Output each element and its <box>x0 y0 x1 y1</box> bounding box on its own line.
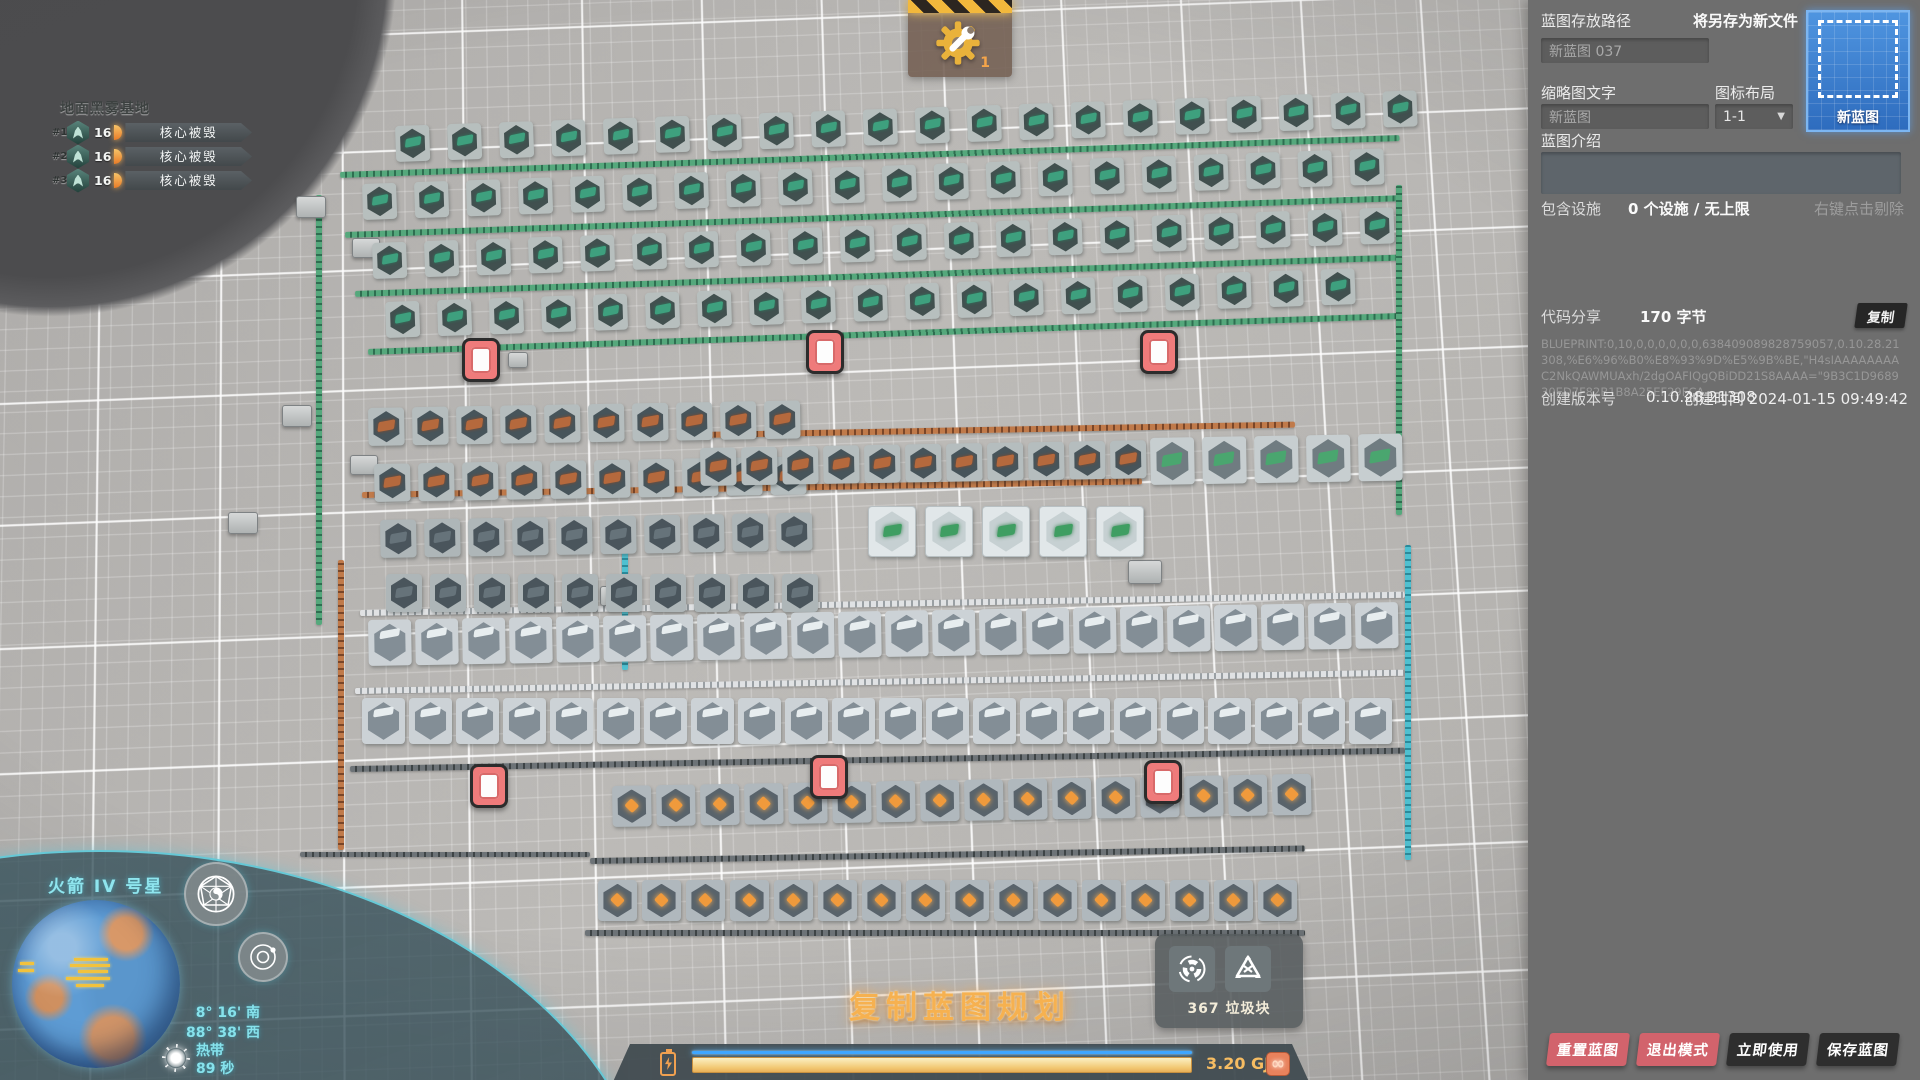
machine-darkm <box>688 514 725 553</box>
machine-smelter <box>1073 607 1117 654</box>
machine-copper <box>823 445 860 484</box>
machine-green <box>414 181 449 218</box>
machine-smelter <box>368 619 412 666</box>
base-status: 核心被毁 <box>125 171 252 190</box>
machine-green <box>1268 270 1303 307</box>
machine-green <box>986 161 1021 198</box>
power-bar-panel: 3.20 GJ ∞ <box>612 1044 1310 1080</box>
orbit-icon <box>246 940 280 974</box>
machine-copper <box>500 405 537 444</box>
machine-lab <box>925 506 973 557</box>
dyson-sphere-icon <box>194 872 238 916</box>
machine-green <box>934 163 969 200</box>
conveyor-belt <box>1405 545 1411 860</box>
machine-smelter <box>744 613 788 660</box>
machine-green <box>645 292 680 329</box>
machine-green <box>840 225 875 262</box>
local-time: 89 秒 <box>196 1060 234 1078</box>
machine-smelter <box>1167 605 1211 652</box>
machine-copper <box>638 459 675 498</box>
machine-copper <box>700 447 737 486</box>
machine-copper <box>741 447 778 486</box>
power-charge-line <box>692 1051 1192 1054</box>
machine-smelter <box>1208 698 1251 744</box>
machine-green <box>1226 96 1261 133</box>
machine-darkm <box>650 574 686 612</box>
machine-darkm <box>424 519 461 558</box>
machine-copper <box>905 444 942 483</box>
base-level: 16 <box>94 173 111 188</box>
description-textarea[interactable] <box>1541 152 1901 194</box>
machine-smelter <box>691 698 734 744</box>
fog-hive-icon <box>66 121 90 145</box>
power-pole-highlighted <box>462 338 500 382</box>
machine-green <box>1038 159 1073 196</box>
machine-green <box>1349 148 1384 185</box>
machine-ocore <box>920 780 960 822</box>
power-pole-highlighted <box>470 764 508 808</box>
machine-smelter <box>838 611 882 658</box>
thumbnail-dashed-frame <box>1818 20 1898 98</box>
machine-smelter <box>926 698 969 744</box>
machine-green <box>622 174 657 211</box>
gear-wrench-icon <box>932 17 984 69</box>
machine-green <box>1048 218 1083 255</box>
code-size: 170 字节 <box>1640 306 1707 327</box>
machine-green <box>1061 277 1096 314</box>
thumb-text-label: 缩略图文字 <box>1541 82 1616 103</box>
base-status: 核心被毁 <box>125 147 252 166</box>
climate-zone: 热带 <box>196 1042 234 1060</box>
machine-copper <box>864 445 901 484</box>
machine-green <box>1152 215 1187 252</box>
machine-smelter <box>503 698 546 744</box>
machine-copper <box>1028 442 1065 481</box>
fog-base-row[interactable]: #216核心被毁 <box>52 146 252 167</box>
machine-darkm <box>738 574 774 612</box>
machine-smelter <box>550 698 593 744</box>
machine-green <box>1203 213 1238 250</box>
fog-hive-icon <box>66 145 90 169</box>
machine-smelter <box>738 698 781 744</box>
machine-darkm <box>380 519 417 558</box>
hazard-stripes <box>908 0 1012 13</box>
machine-copper <box>418 463 455 502</box>
machine-green <box>1297 150 1332 187</box>
machine-copper <box>588 404 625 443</box>
machine-green <box>1382 90 1417 127</box>
machine-copper <box>764 400 801 439</box>
machine-smelter <box>791 612 835 659</box>
description-label: 蓝图介绍 <box>1541 130 1601 151</box>
machine-copper <box>1069 441 1106 480</box>
machine-copper <box>462 462 499 501</box>
machine-green <box>996 220 1031 257</box>
machine-ocore <box>1184 775 1224 817</box>
machine-ocore <box>1096 777 1136 819</box>
machine-ocore <box>1008 778 1048 820</box>
save-as-new-button[interactable]: 将另存为新文件 <box>1676 10 1798 31</box>
machine-copper <box>946 443 983 482</box>
machine-copper <box>676 402 713 441</box>
machine-green <box>778 168 813 205</box>
machine-copper <box>632 403 669 442</box>
machine-lab <box>1096 506 1144 557</box>
machine-green <box>1090 157 1125 194</box>
machine-green <box>1113 275 1148 312</box>
path-input[interactable] <box>1541 38 1709 63</box>
machine-cluster <box>1306 435 1351 483</box>
machine-ocore <box>1052 778 1092 820</box>
fog-base-panel: 地面黑雾基地 #116核心被毁#216核心被毁#316核心被毁 <box>52 98 252 194</box>
machine-green <box>863 108 898 145</box>
base-id: #3 <box>52 175 66 186</box>
thumbnail-name: 新蓝图 <box>1808 107 1908 127</box>
machine-green <box>957 281 992 318</box>
machine-ocore <box>1170 880 1209 921</box>
machine-smelter <box>1302 698 1345 744</box>
machine-cluster <box>1202 436 1247 484</box>
code-share-label: 代码分享 <box>1541 306 1601 327</box>
power-pole-highlighted <box>806 330 844 374</box>
blueprint-panel: 蓝图存放路径 将另存为新文件 缩略图文字 图标布局 1-1 ▼ 蓝图介绍 新蓝图… <box>1528 0 1920 1080</box>
machine-smelter <box>650 614 694 661</box>
turbine-icon <box>1176 953 1208 985</box>
machine-darkm <box>600 516 637 555</box>
machine-green <box>1175 98 1210 135</box>
machine-darkm <box>694 574 730 612</box>
machine-smelter <box>556 616 600 663</box>
recycle-icon <box>1232 953 1264 985</box>
power-pole-highlighted <box>1144 760 1182 804</box>
machine-darkm <box>512 517 549 556</box>
machine-smelter <box>597 698 640 744</box>
machine-ocore <box>700 784 740 826</box>
machine-darkm <box>386 574 422 612</box>
machine-green <box>528 236 563 273</box>
machine-darkm <box>644 515 681 554</box>
machine-green <box>1255 211 1290 248</box>
fog-base-title: 地面黑雾基地 <box>60 98 252 118</box>
base-status: 核心被毁 <box>125 123 252 142</box>
fog-hive-icon <box>66 169 90 193</box>
machine-smelter <box>456 698 499 744</box>
machine-lab <box>982 506 1030 557</box>
trash-count: 367 垃圾块 <box>1155 998 1303 1018</box>
threat-crescent-icon <box>114 173 122 188</box>
machine-copper <box>412 407 449 446</box>
machine-green <box>489 297 524 334</box>
machine-cluster <box>1254 435 1299 483</box>
fog-base-row[interactable]: #316核心被毁 <box>52 170 252 191</box>
machine-smelter <box>1161 698 1204 744</box>
machine-ocore <box>744 783 784 825</box>
machine-smelter <box>1349 698 1392 744</box>
machine-ocore <box>964 779 1004 821</box>
logistics-block <box>282 405 312 427</box>
machine-smelter <box>1067 698 1110 744</box>
machine-smelter <box>362 698 405 744</box>
sun-icon <box>166 1048 186 1068</box>
machine-copper <box>594 460 631 499</box>
city-lights <box>66 977 110 980</box>
machine-green <box>395 125 430 162</box>
machine-green <box>1123 99 1158 136</box>
machine-ocore <box>1272 774 1312 816</box>
machine-copper <box>550 460 587 499</box>
base-level: 16 <box>94 125 111 140</box>
copy-button[interactable]: 复制 <box>1854 303 1908 328</box>
machine-darkm <box>518 574 554 612</box>
machine-green <box>1193 154 1228 191</box>
machine-copper <box>374 463 411 502</box>
machine-lab <box>868 506 916 557</box>
machine-ocore <box>656 785 696 827</box>
climate-info: 热带 89 秒 <box>196 1042 234 1078</box>
city-lights <box>70 964 110 967</box>
machine-green <box>551 119 586 156</box>
machine-smelter <box>973 698 1016 744</box>
city-lights <box>18 969 34 972</box>
fog-base-row[interactable]: #116核心被毁 <box>52 122 252 143</box>
machine-green <box>580 235 615 272</box>
machine-cluster <box>1150 437 1195 485</box>
machine-smelter <box>1255 698 1298 744</box>
planet-name: 火箭 IV 号星 <box>48 872 163 897</box>
machine-green <box>759 112 794 149</box>
machine-smelter <box>644 698 687 744</box>
machine-green <box>593 294 628 331</box>
machine-green <box>853 284 888 321</box>
machine-green <box>372 242 407 279</box>
machine-green <box>1307 209 1342 246</box>
machine-smelter <box>932 609 976 656</box>
machine-copper <box>456 406 493 445</box>
machine-smelter <box>409 698 452 744</box>
machine-ocore <box>612 785 652 827</box>
conveyor-belt <box>350 748 1405 772</box>
machine-green <box>736 229 771 266</box>
machine-smelter <box>1114 698 1157 744</box>
machine-green <box>1359 207 1394 244</box>
machine-green <box>1019 103 1054 140</box>
machine-green <box>632 233 667 270</box>
machine-green <box>697 290 732 327</box>
machine-ocore <box>950 880 989 921</box>
machine-smelter <box>832 698 875 744</box>
machine-darkm <box>606 574 642 612</box>
machine-ocore <box>1038 880 1077 921</box>
path-label: 蓝图存放路径 <box>1541 10 1631 31</box>
machine-green <box>385 301 420 338</box>
warning-count: 1 <box>980 55 990 71</box>
icon-layout-select[interactable]: 1-1 ▼ <box>1715 104 1793 129</box>
machine-darkm <box>782 574 818 612</box>
machine-smelter <box>1026 608 1070 655</box>
machine-smelter <box>1120 606 1164 653</box>
blueprint-thumbnail[interactable]: 新蓝图 <box>1806 10 1910 132</box>
icon-layout-label: 图标布局 <box>1715 82 1775 103</box>
machine-green <box>944 222 979 259</box>
machine-darkm <box>556 516 593 555</box>
base-id: #2 <box>52 151 66 162</box>
conveyor-belt <box>355 670 1405 694</box>
machine-smelter <box>785 698 828 744</box>
machine-green <box>1330 92 1365 129</box>
machine-ocore <box>906 880 945 921</box>
machine-green <box>424 240 459 277</box>
machine-ocore <box>1214 880 1253 921</box>
machine-ocore <box>1082 880 1121 921</box>
machine-copper <box>368 407 405 446</box>
machine-green <box>499 121 534 158</box>
machine-smelter <box>509 617 553 664</box>
machine-green <box>1165 274 1200 311</box>
time-label: 创建时间 <box>1684 390 1744 408</box>
machine-ocore <box>642 880 681 921</box>
machine-smelter <box>1308 603 1352 650</box>
machine-ocore <box>1126 880 1165 921</box>
reset-blueprint-button[interactable]: 重置蓝图 <box>1546 1033 1630 1066</box>
logistics-block <box>508 352 528 368</box>
machine-green <box>1100 216 1135 253</box>
machine-green <box>905 283 940 320</box>
machine-smelter <box>879 698 922 744</box>
dyson-sphere-button[interactable] <box>184 862 248 926</box>
power-pole-highlighted <box>810 755 848 799</box>
logistics-block <box>1128 560 1162 584</box>
machine-smelter <box>1261 604 1305 651</box>
recycle-trash-button[interactable] <box>1225 946 1271 992</box>
machine-copper <box>506 461 543 500</box>
icon-layout-value: 1-1 <box>1723 109 1746 125</box>
machine-green <box>749 288 784 325</box>
exit-mode-button[interactable]: 退出模式 <box>1636 1033 1720 1066</box>
machine-green <box>892 224 927 261</box>
machine-ocore <box>818 880 857 921</box>
machine-green <box>967 105 1002 142</box>
power-storage-bar <box>692 1057 1192 1073</box>
facilities-label: 包含设施 <box>1541 198 1601 219</box>
machine-green <box>603 118 638 155</box>
machine-green <box>882 165 917 202</box>
conveyor-belt <box>316 195 322 625</box>
machine-darkm <box>776 512 813 551</box>
thumb-text-input[interactable] <box>1541 104 1709 129</box>
machine-green <box>707 114 742 151</box>
machine-green <box>570 176 605 213</box>
machine-green <box>684 231 719 268</box>
machine-smelter <box>1020 698 1063 744</box>
city-lights <box>74 958 108 961</box>
machine-darkm <box>562 574 598 612</box>
use-now-button[interactable]: 立即使用 <box>1726 1033 1810 1066</box>
machine-darkm <box>732 513 769 552</box>
logistics-block <box>228 512 258 534</box>
machine-cluster <box>1358 434 1403 482</box>
threat-crescent-icon <box>114 125 122 140</box>
logistics-block <box>296 196 326 218</box>
machine-green <box>1216 272 1251 309</box>
conveyor-belt <box>300 852 590 857</box>
machine-ocore <box>774 880 813 921</box>
infinity-badge: ∞ <box>1266 1052 1290 1076</box>
machine-ocore <box>1258 880 1297 921</box>
machine-green <box>1245 152 1280 189</box>
machine-smelter <box>697 614 741 661</box>
power-pole-highlighted <box>1140 330 1178 374</box>
machine-darkm <box>474 574 510 612</box>
machine-smelter <box>1355 602 1399 649</box>
machine-ocore <box>686 880 725 921</box>
machine-green <box>915 107 950 144</box>
machine-green <box>1278 94 1313 131</box>
machine-ocore <box>876 781 916 823</box>
orbit-view-button[interactable] <box>238 932 288 982</box>
created-time: 创建时间 2024-01-15 09:49:42 <box>1678 388 1908 409</box>
machine-smelter <box>1214 604 1258 651</box>
conveyor-belt <box>590 846 1305 864</box>
warning-alert-panel[interactable]: 1 <box>908 0 1012 77</box>
city-lights <box>78 970 108 973</box>
machine-copper <box>544 404 581 443</box>
machine-darkm <box>430 574 466 612</box>
machine-green <box>476 238 511 275</box>
machine-green <box>655 116 690 153</box>
base-level: 16 <box>94 149 111 164</box>
machine-copper <box>720 401 757 440</box>
conveyor-belt <box>338 560 344 850</box>
machine-smelter <box>603 615 647 662</box>
machine-ocore <box>862 880 901 921</box>
machine-green <box>447 123 482 160</box>
threat-crescent-icon <box>114 149 122 164</box>
machine-green <box>362 183 397 220</box>
machine-smelter <box>979 609 1023 656</box>
machine-green <box>466 179 501 216</box>
machine-green <box>437 299 472 336</box>
facilities-hint: 右键点击剔除 <box>1728 198 1904 219</box>
base-id: #1 <box>52 127 66 138</box>
trash-panel: 367 垃圾块 <box>1155 934 1303 1028</box>
machine-smelter <box>415 618 459 665</box>
machine-ocore <box>994 880 1033 921</box>
machine-ocore <box>1228 775 1268 817</box>
machine-green <box>830 166 865 203</box>
machine-green <box>541 295 576 332</box>
save-blueprint-button[interactable]: 保存蓝图 <box>1816 1033 1900 1066</box>
machine-green <box>1009 279 1044 316</box>
city-lights <box>20 962 34 965</box>
machine-green <box>726 170 761 207</box>
machine-darkm <box>468 518 505 557</box>
chevron-down-icon: ▼ <box>1777 111 1785 122</box>
machine-green <box>801 286 836 323</box>
power-value: 3.20 GJ <box>1206 1054 1270 1073</box>
machine-lab <box>1039 506 1087 557</box>
machine-green <box>788 227 823 264</box>
machine-ocore <box>730 880 769 921</box>
dark-fog-matter-button[interactable] <box>1169 946 1215 992</box>
machine-copper <box>987 442 1024 481</box>
machine-green <box>1071 101 1106 138</box>
machine-green <box>1142 156 1177 193</box>
machine-smelter <box>462 618 506 665</box>
battery-icon <box>660 1052 676 1076</box>
version-label: 创建版本号 <box>1541 388 1616 409</box>
machine-green <box>811 110 846 147</box>
machine-green <box>518 177 553 214</box>
